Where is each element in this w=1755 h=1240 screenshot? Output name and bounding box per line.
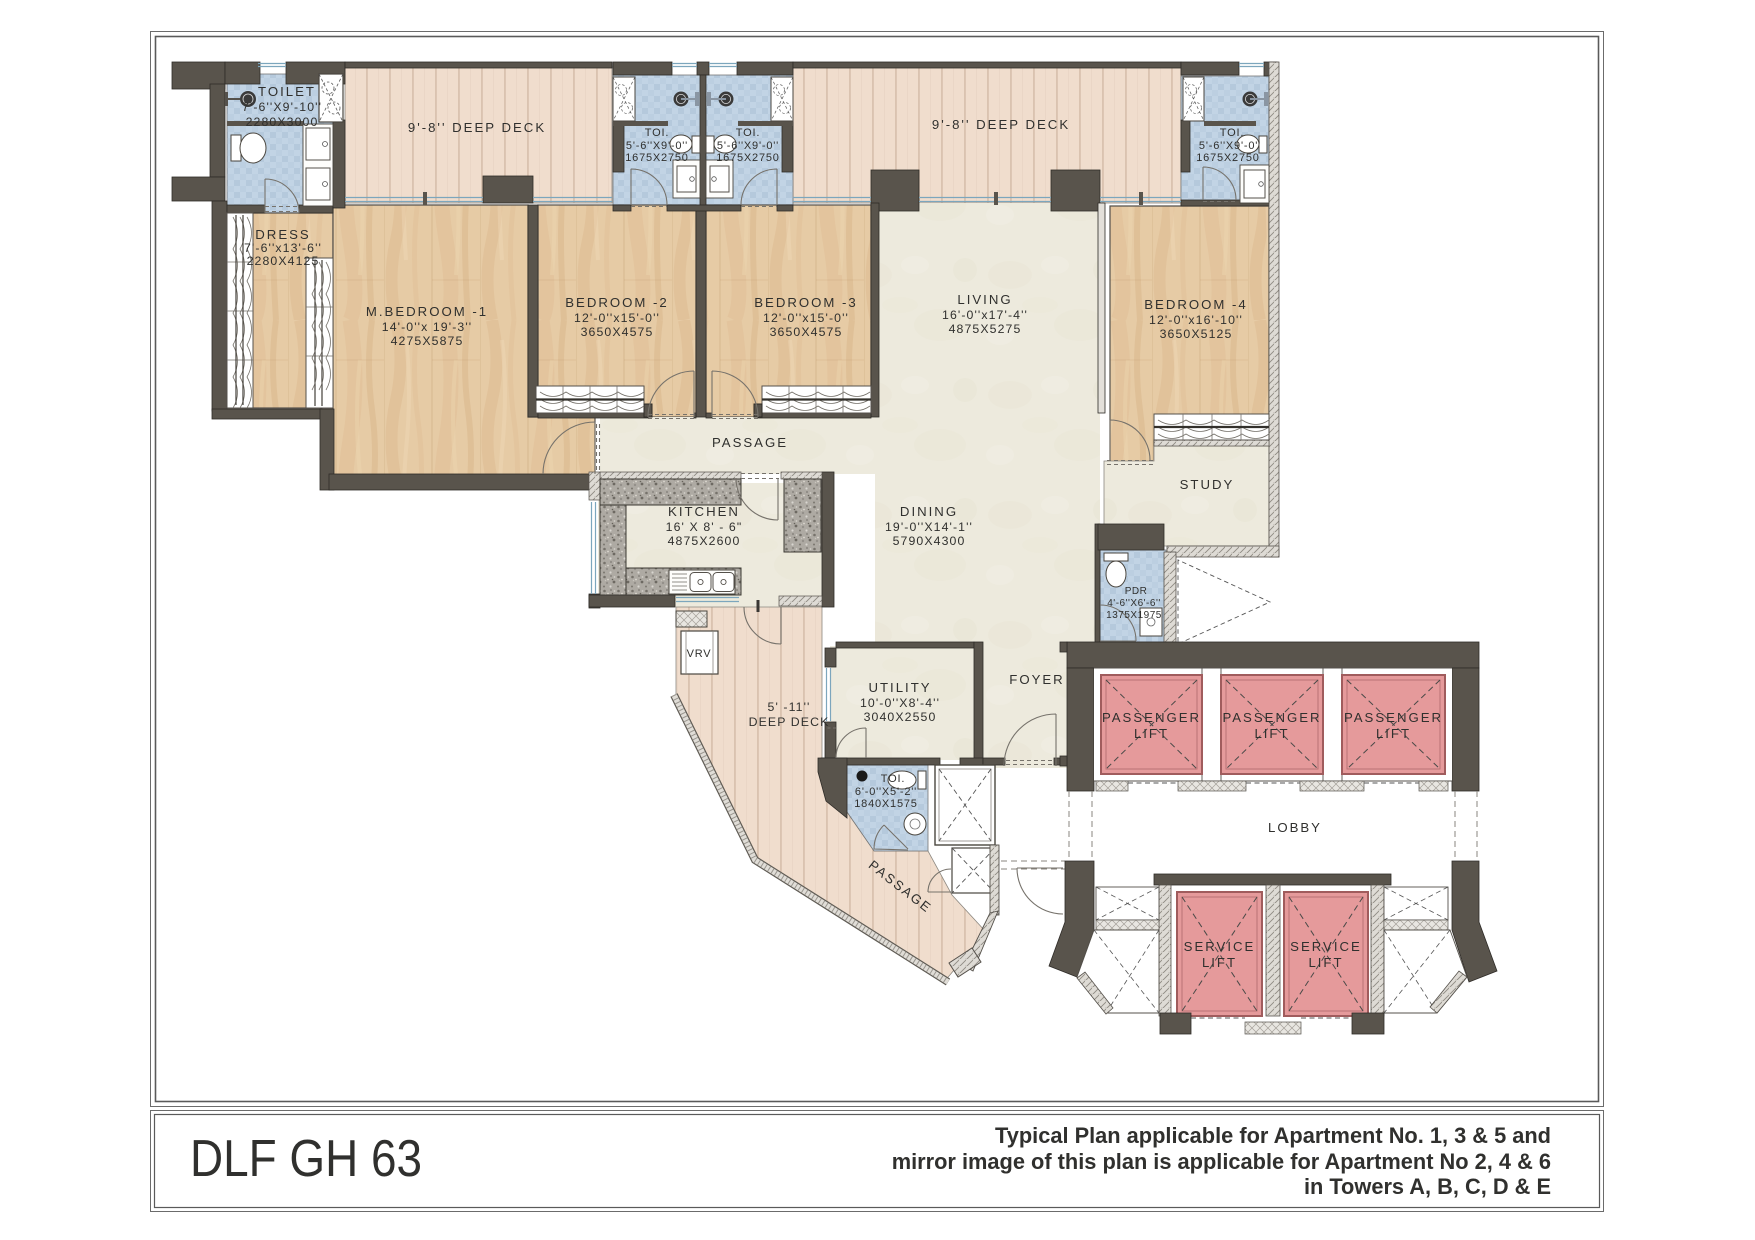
svg-text:3650X4575: 3650X4575 — [581, 325, 654, 339]
svg-text:M.BEDROOM -1: M.BEDROOM -1 — [366, 304, 488, 319]
svg-text:3040X2550: 3040X2550 — [864, 710, 937, 724]
svg-text:mirror image of this plan is a: mirror image of this plan is applicable … — [892, 1149, 1551, 1174]
svg-text:5' -11'': 5' -11'' — [768, 700, 811, 714]
svg-text:BEDROOM -2: BEDROOM -2 — [565, 295, 669, 310]
svg-text:DINING: DINING — [900, 504, 958, 519]
svg-text:5'-6''X9'-0'': 5'-6''X9'-0'' — [717, 140, 779, 152]
svg-text:in Towers A, B, C, D & E: in Towers A, B, C, D & E — [1304, 1174, 1551, 1199]
svg-text:4275X5875: 4275X5875 — [391, 334, 464, 348]
svg-text:PASSENGER: PASSENGER — [1222, 710, 1321, 725]
svg-text:4875X5275: 4875X5275 — [949, 322, 1022, 336]
svg-text:SERVICE: SERVICE — [1290, 939, 1362, 954]
svg-text:1840X1575: 1840X1575 — [854, 798, 917, 810]
svg-text:2280X3000: 2280X3000 — [246, 115, 319, 129]
svg-text:BEDROOM -4: BEDROOM -4 — [1144, 297, 1248, 312]
svg-text:5790X4300: 5790X4300 — [893, 534, 966, 548]
svg-text:DEEP DECK: DEEP DECK — [749, 715, 830, 729]
svg-text:BEDROOM -3: BEDROOM -3 — [754, 295, 858, 310]
svg-text:7'-6''x13'-6'': 7'-6''x13'-6'' — [244, 241, 322, 255]
svg-text:PASSENGER: PASSENGER — [1102, 710, 1201, 725]
svg-text:TOI.: TOI. — [736, 127, 760, 139]
svg-text:4'-6''X6'-6'': 4'-6''X6'-6'' — [1107, 598, 1161, 609]
svg-text:7'-6''X9'-10'': 7'-6''X9'-10'' — [242, 100, 322, 114]
svg-text:12'-0''x16'-10'': 12'-0''x16'-10'' — [1149, 313, 1243, 327]
svg-text:9'-8'' DEEP DECK: 9'-8'' DEEP DECK — [932, 117, 1070, 132]
svg-text:12'-0''x15'-0'': 12'-0''x15'-0'' — [763, 311, 849, 325]
svg-text:UTILITY: UTILITY — [868, 680, 931, 695]
svg-text:1375X1975: 1375X1975 — [1106, 610, 1162, 621]
svg-text:6'-0''X5'-2'': 6'-0''X5'-2'' — [855, 786, 917, 798]
svg-text:2280X4125: 2280X4125 — [247, 254, 320, 268]
svg-text:LIVING: LIVING — [957, 292, 1012, 307]
svg-text:PASSENGER: PASSENGER — [1344, 710, 1443, 725]
svg-text:3650X5125: 3650X5125 — [1160, 327, 1233, 341]
svg-text:VRV: VRV — [687, 648, 712, 660]
svg-text:SERVICE: SERVICE — [1184, 939, 1256, 954]
svg-text:LIFT: LIFT — [1202, 955, 1237, 970]
svg-text:9'-8'' DEEP DECK: 9'-8'' DEEP DECK — [408, 120, 546, 135]
svg-text:PASSAGE: PASSAGE — [712, 435, 788, 450]
svg-text:LIFT: LIFT — [1308, 955, 1343, 970]
svg-text:Typical Plan applicable for Ap: Typical Plan applicable for Apartment No… — [995, 1123, 1551, 1148]
svg-text:5'-6''X9'-0'': 5'-6''X9'-0'' — [1199, 140, 1261, 152]
svg-text:1675X2750: 1675X2750 — [1196, 152, 1259, 164]
svg-text:STUDY: STUDY — [1180, 477, 1235, 492]
svg-text:FOYER: FOYER — [1009, 672, 1064, 687]
svg-text:DLF GH 63: DLF GH 63 — [190, 1130, 422, 1188]
svg-text:5'-6''X9'-0'': 5'-6''X9'-0'' — [626, 140, 688, 152]
svg-text:16' X 8' - 6": 16' X 8' - 6" — [666, 520, 743, 534]
svg-text:LIFT: LIFT — [1376, 726, 1411, 741]
svg-text:TOI.: TOI. — [881, 773, 905, 785]
svg-text:TOILET: TOILET — [258, 84, 316, 99]
svg-text:14'-0''x 19'-3'': 14'-0''x 19'-3'' — [382, 320, 472, 334]
svg-text:1675X2750: 1675X2750 — [625, 152, 688, 164]
svg-text:16'-0''x17'-4'': 16'-0''x17'-4'' — [942, 308, 1028, 322]
svg-text:1675X2750: 1675X2750 — [716, 152, 779, 164]
svg-text:4875X2600: 4875X2600 — [668, 534, 741, 548]
svg-text:PDR: PDR — [1125, 586, 1148, 597]
svg-text:10'-0''X8'-4'': 10'-0''X8'-4'' — [860, 696, 940, 710]
svg-text:KITCHEN: KITCHEN — [668, 504, 740, 519]
svg-text:LOBBY: LOBBY — [1268, 820, 1322, 835]
svg-text:TOI.: TOI. — [1220, 127, 1244, 139]
svg-text:3650X4575: 3650X4575 — [770, 325, 843, 339]
svg-text:DRESS: DRESS — [255, 227, 310, 242]
svg-text:TOI.: TOI. — [645, 127, 669, 139]
svg-text:19'-0''X14'-1'': 19'-0''X14'-1'' — [885, 520, 973, 534]
svg-text:LIFT: LIFT — [1254, 726, 1289, 741]
svg-text:LIFT: LIFT — [1134, 726, 1169, 741]
svg-text:12'-0''x15'-0'': 12'-0''x15'-0'' — [574, 311, 660, 325]
